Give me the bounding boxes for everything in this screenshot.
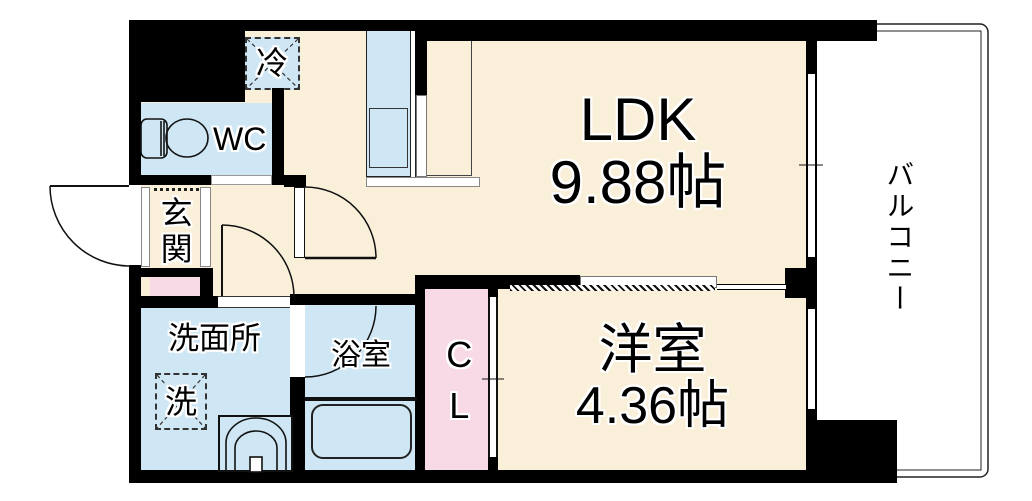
ldk-label-block: LDK 9.88帖	[498, 88, 778, 214]
vector-overlay	[0, 0, 1032, 501]
toilet-icon	[141, 119, 208, 158]
ldk-label: LDK	[498, 88, 778, 151]
balcony-label: バルコニー	[884, 160, 913, 315]
ldk-size: 9.88帖	[498, 151, 778, 214]
washroom-door-arc	[222, 225, 294, 297]
floor-plan: LDK 9.88帖 洋室 4.36帖 バルコニー WC 玄関 洗面所 浴室 CL…	[0, 0, 1032, 501]
washbasin-icon	[226, 418, 286, 472]
washer-label: 洗	[165, 386, 197, 420]
western-label-block: 洋室 4.36帖	[520, 322, 785, 433]
entrance-label: 玄関	[157, 196, 191, 268]
washroom-label: 洗面所	[168, 323, 261, 356]
refrigerator-label: 冷	[256, 47, 288, 81]
closet-label: CL	[440, 334, 478, 436]
ldk-door-arc	[305, 187, 376, 258]
wc-label: WC	[213, 123, 266, 157]
entrance-door-arc	[50, 186, 130, 266]
western-label: 洋室	[520, 322, 785, 379]
bathroom-label: 浴室	[331, 340, 391, 372]
western-size: 4.36帖	[520, 379, 785, 434]
